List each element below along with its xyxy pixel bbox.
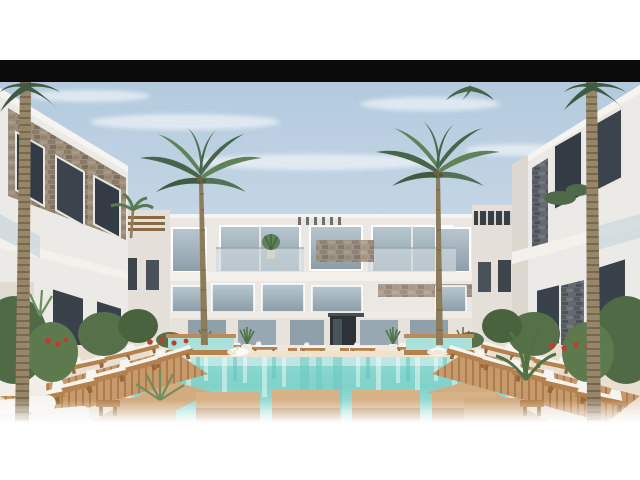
bottom-white-margin	[0, 423, 640, 480]
top-white-margin	[0, 0, 640, 60]
bottom-fade	[0, 400, 640, 423]
screenshot-canvas	[0, 0, 640, 480]
resort-render-image	[0, 0, 640, 480]
letterbox-bar	[0, 60, 640, 82]
stone-pier	[532, 158, 548, 258]
center-building	[162, 214, 480, 345]
stone-parapet	[316, 240, 374, 262]
photo-area	[0, 82, 640, 426]
